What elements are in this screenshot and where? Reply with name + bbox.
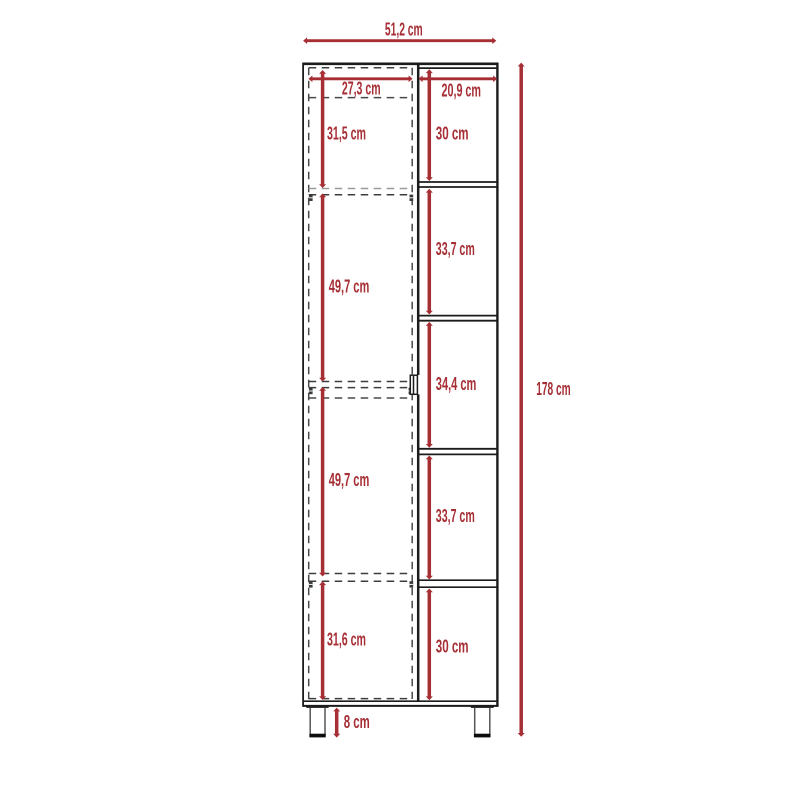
svg-text:31,5 cm: 31,5 cm	[327, 123, 366, 143]
svg-text:51,2 cm: 51,2 cm	[385, 20, 423, 40]
svg-text:20,9 cm: 20,9 cm	[442, 80, 482, 100]
svg-text:8 cm: 8 cm	[344, 712, 370, 732]
svg-text:49,7 cm: 49,7 cm	[329, 277, 370, 297]
svg-text:34,4 cm: 34,4 cm	[436, 374, 477, 394]
svg-text:31,6 cm: 31,6 cm	[327, 630, 366, 650]
svg-text:27,3 cm: 27,3 cm	[342, 78, 381, 98]
svg-text:30 cm: 30 cm	[436, 123, 469, 143]
svg-text:33,7 cm: 33,7 cm	[436, 239, 475, 259]
svg-text:30 cm: 30 cm	[436, 637, 469, 657]
svg-text:33,7 cm: 33,7 cm	[436, 506, 475, 526]
svg-text:49,7 cm: 49,7 cm	[329, 470, 370, 490]
svg-text:178 cm: 178 cm	[536, 379, 571, 399]
